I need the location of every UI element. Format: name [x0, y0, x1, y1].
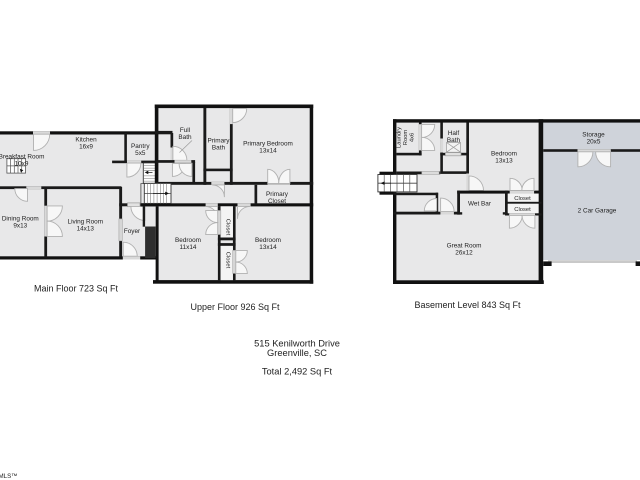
svg-text:Living Room: Living Room: [68, 219, 104, 226]
svg-text:Closet: Closet: [225, 219, 231, 236]
svg-text:Primary Bedroom: Primary Bedroom: [243, 140, 293, 147]
svg-text:Main Floor 723 Sq Ft: Main Floor 723 Sq Ft: [34, 284, 119, 294]
svg-text:Greenville, SC: Greenville, SC: [267, 348, 327, 358]
svg-text:13x14: 13x14: [259, 147, 277, 154]
svg-text:MLS™: MLS™: [0, 473, 17, 480]
svg-text:Primary: Primary: [266, 191, 289, 198]
svg-text:2 Car Garage: 2 Car Garage: [578, 207, 617, 214]
svg-text:Great Room: Great Room: [447, 243, 482, 250]
svg-text:Closet: Closet: [225, 252, 231, 269]
svg-text:Closet: Closet: [268, 198, 286, 205]
svg-text:20x5: 20x5: [587, 139, 601, 146]
svg-text:14x13: 14x13: [77, 226, 95, 233]
svg-text:Bedroom: Bedroom: [491, 150, 517, 157]
svg-text:Full: Full: [180, 127, 190, 134]
svg-text:Primary: Primary: [207, 137, 230, 144]
svg-text:10x9: 10x9: [15, 161, 29, 168]
svg-text:Storage: Storage: [582, 132, 605, 139]
svg-text:Foyer: Foyer: [124, 228, 141, 235]
svg-text:16x9: 16x9: [79, 143, 93, 150]
svg-text:Dining Room: Dining Room: [2, 216, 39, 223]
svg-text:4x6: 4x6: [410, 133, 416, 142]
svg-text:Total 2,492 Sq Ft: Total 2,492 Sq Ft: [262, 367, 333, 377]
svg-text:5x5: 5x5: [135, 150, 146, 157]
svg-text:Laundry: Laundry: [397, 127, 403, 148]
svg-text:Bath: Bath: [178, 134, 192, 141]
svg-text:Room: Room: [403, 130, 409, 146]
svg-text:Bath: Bath: [212, 144, 226, 151]
svg-text:Breakfast Room: Breakfast Room: [0, 154, 44, 161]
svg-text:13x13: 13x13: [495, 157, 513, 164]
svg-text:Closet: Closet: [514, 207, 531, 213]
svg-text:26x12: 26x12: [455, 250, 473, 257]
svg-text:13x14: 13x14: [259, 244, 277, 251]
svg-text:11x14: 11x14: [180, 244, 197, 251]
svg-text:Pantry: Pantry: [131, 143, 150, 150]
svg-text:Wet Bar: Wet Bar: [468, 201, 492, 208]
svg-text:Closet: Closet: [514, 196, 531, 202]
svg-text:Bath: Bath: [447, 137, 461, 144]
svg-text:9x13: 9x13: [13, 223, 27, 230]
svg-text:Upper Floor 926 Sq Ft: Upper Floor 926 Sq Ft: [190, 302, 280, 312]
svg-text:Bedroom: Bedroom: [175, 237, 201, 244]
svg-text:Half: Half: [448, 130, 460, 137]
svg-text:Bedroom: Bedroom: [255, 237, 281, 244]
svg-text:Kitchen: Kitchen: [75, 136, 97, 143]
svg-text:Basement Level 843 Sq Ft: Basement Level 843 Sq Ft: [414, 300, 521, 310]
